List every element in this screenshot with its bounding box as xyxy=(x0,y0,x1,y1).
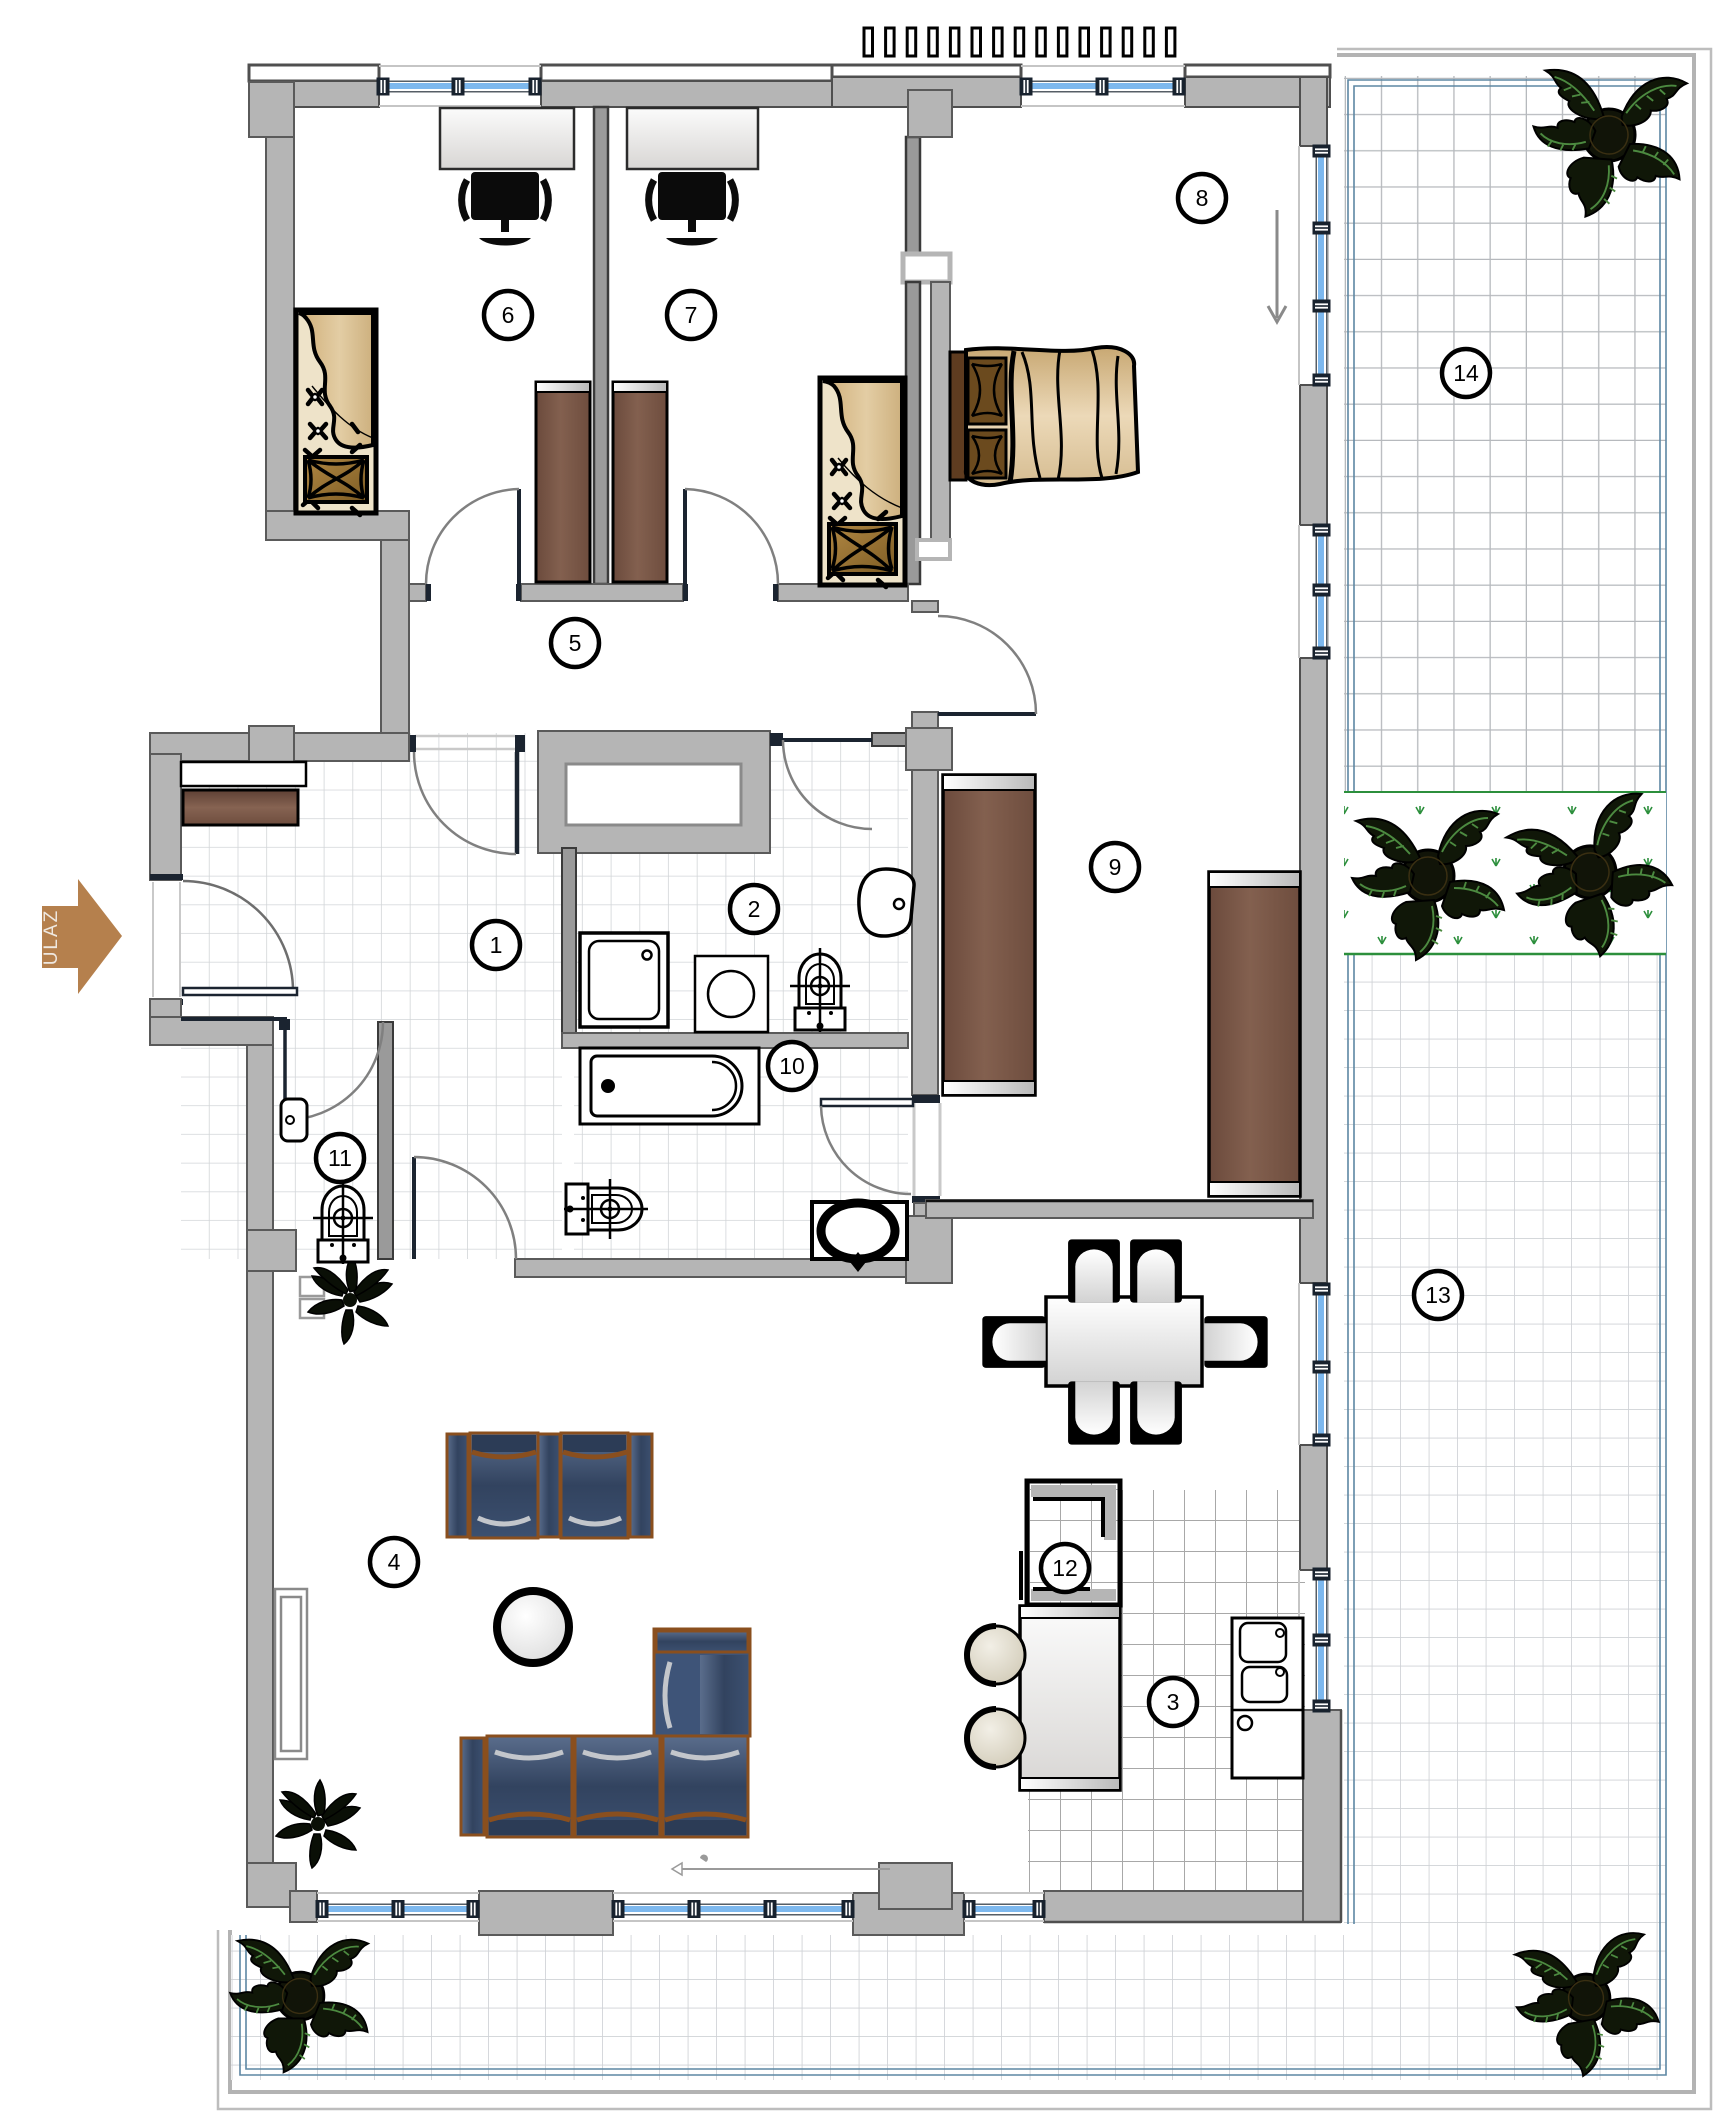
svg-text:ULAZ: ULAZ xyxy=(41,909,62,966)
svg-text:11: 11 xyxy=(328,1145,352,1171)
svg-text:5: 5 xyxy=(569,630,582,656)
svg-text:4: 4 xyxy=(388,1549,401,1575)
svg-text:9: 9 xyxy=(1109,854,1122,880)
svg-text:13: 13 xyxy=(1425,1282,1451,1308)
svg-text:7: 7 xyxy=(685,302,698,328)
svg-text:10: 10 xyxy=(779,1053,805,1079)
svg-text:6: 6 xyxy=(502,302,515,328)
svg-text:14: 14 xyxy=(1453,360,1479,386)
svg-text:2: 2 xyxy=(748,896,761,922)
svg-text:8: 8 xyxy=(1196,185,1209,211)
svg-text:12: 12 xyxy=(1052,1555,1078,1581)
svg-text:1: 1 xyxy=(490,932,503,958)
svg-text:3: 3 xyxy=(1167,1689,1180,1715)
